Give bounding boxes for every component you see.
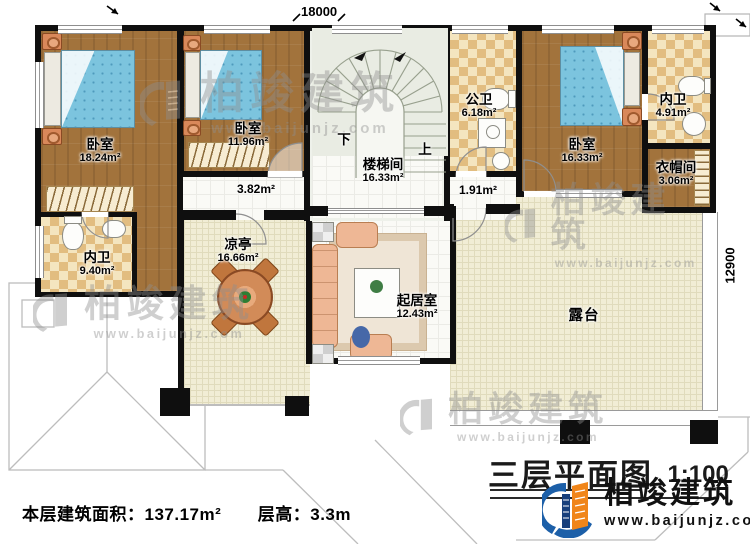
area-value: 137.17m² (145, 505, 222, 524)
height-value: 3.3m (310, 505, 351, 524)
floor-plan: 柏竣建筑www.baijunjz.com 柏竣建筑www.baijunjz.co… (0, 0, 750, 544)
area-label: 本层建筑面积： (22, 505, 145, 524)
height-label: 层高： (258, 505, 311, 524)
company-website: www.baijunjz.com (604, 513, 750, 529)
floor-area-note: 本层建筑面积：137.17m² 层高：3.3m (22, 500, 351, 525)
company-logo-icon (542, 478, 600, 538)
company-name: 柏竣建筑 (604, 478, 750, 510)
company-logo: 柏竣建筑 www.baijunjz.com (542, 478, 750, 538)
